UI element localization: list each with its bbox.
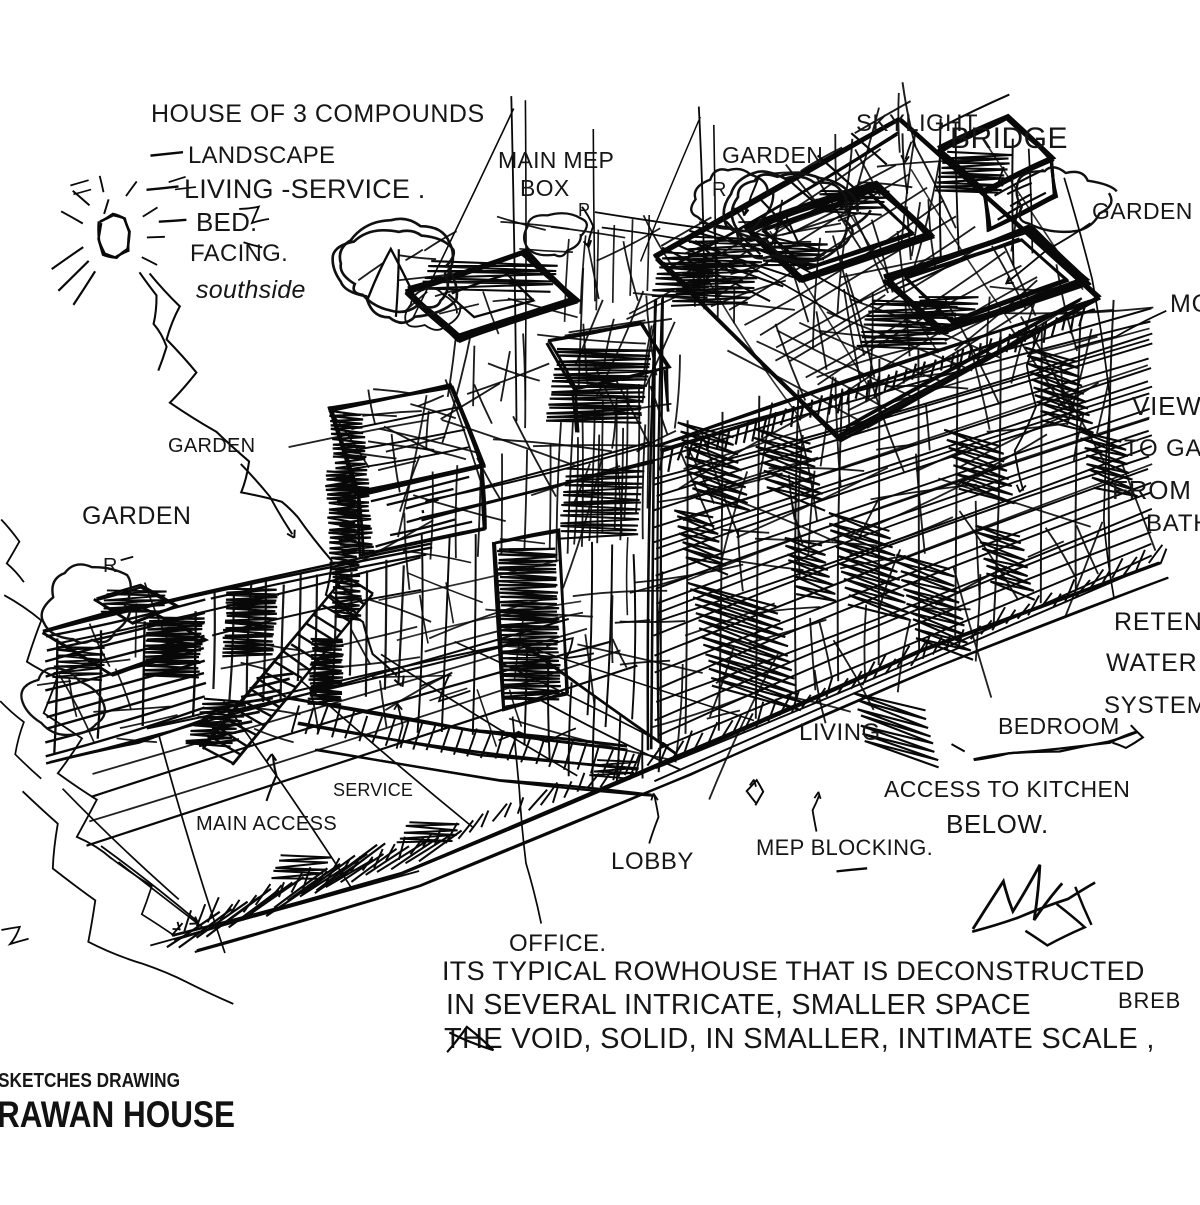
svg-text:SERVICE: SERVICE	[333, 780, 413, 800]
svg-text:LOBBY: LOBBY	[611, 848, 694, 875]
svg-text:IN SEVERAL INTRICATE, SMALLER: IN SEVERAL INTRICATE, SMALLER SPACE	[446, 989, 1031, 1021]
svg-text:BEDROOM: BEDROOM	[998, 713, 1120, 739]
svg-text:MEP BLOCKING.: MEP BLOCKING.	[756, 835, 933, 860]
svg-text:BELOW.: BELOW.	[946, 809, 1049, 839]
svg-text:TO GAR: TO GAR	[1124, 435, 1200, 462]
svg-text:RAWAN HOUSE: RAWAN HOUSE	[0, 1094, 235, 1135]
svg-text:WATER: WATER	[1106, 649, 1198, 677]
svg-text:RETEN: RETEN	[1114, 608, 1200, 636]
svg-text:LIVING: LIVING	[799, 719, 881, 746]
svg-text:BRIDGE: BRIDGE	[950, 122, 1068, 155]
svg-text:BED.: BED.	[196, 207, 257, 237]
svg-text:HOUSE OF 3 COMPOUNDS: HOUSE OF 3 COMPOUNDS	[151, 100, 485, 128]
svg-text:GARDEN: GARDEN	[168, 435, 255, 457]
svg-text:ITS TYPICAL ROWHOUSE THAT IS D: ITS TYPICAL ROWHOUSE THAT IS DECONSTRUCT…	[442, 956, 1145, 986]
svg-text:R: R	[103, 555, 118, 577]
svg-text:MO: MO	[1170, 290, 1200, 318]
svg-text:southside: southside	[196, 276, 306, 304]
svg-text:FACING.: FACING.	[190, 240, 288, 267]
svg-text:P: P	[578, 200, 591, 220]
svg-text:GARDEN: GARDEN	[1092, 198, 1193, 224]
svg-text:LIVING -SERVICE .: LIVING -SERVICE .	[184, 174, 425, 204]
svg-text:BOX: BOX	[520, 175, 569, 201]
svg-text:FROM: FROM	[1112, 475, 1192, 505]
svg-text:LANDSCAPE: LANDSCAPE	[188, 142, 335, 169]
svg-text:R: R	[712, 179, 727, 201]
svg-text:BREB: BREB	[1118, 988, 1181, 1013]
svg-text:THE VOID, SOLID, IN SMALLER, I: THE VOID, SOLID, IN SMALLER, INTIMATE SC…	[444, 1023, 1155, 1055]
svg-text:GARDEN: GARDEN	[722, 142, 823, 168]
svg-text:OFFICE.: OFFICE.	[509, 930, 606, 957]
svg-text:MAIN MEP: MAIN MEP	[498, 147, 614, 173]
svg-text:VIEW: VIEW	[1132, 391, 1200, 421]
svg-text:GARDEN: GARDEN	[82, 502, 191, 530]
svg-text:MAIN ACCESS: MAIN ACCESS	[196, 813, 337, 835]
svg-text:SKETCHES DRAWING: SKETCHES DRAWING	[0, 1070, 180, 1092]
svg-text:BATH: BATH	[1146, 510, 1200, 537]
svg-text:ACCESS TO KITCHEN: ACCESS TO KITCHEN	[884, 776, 1130, 802]
